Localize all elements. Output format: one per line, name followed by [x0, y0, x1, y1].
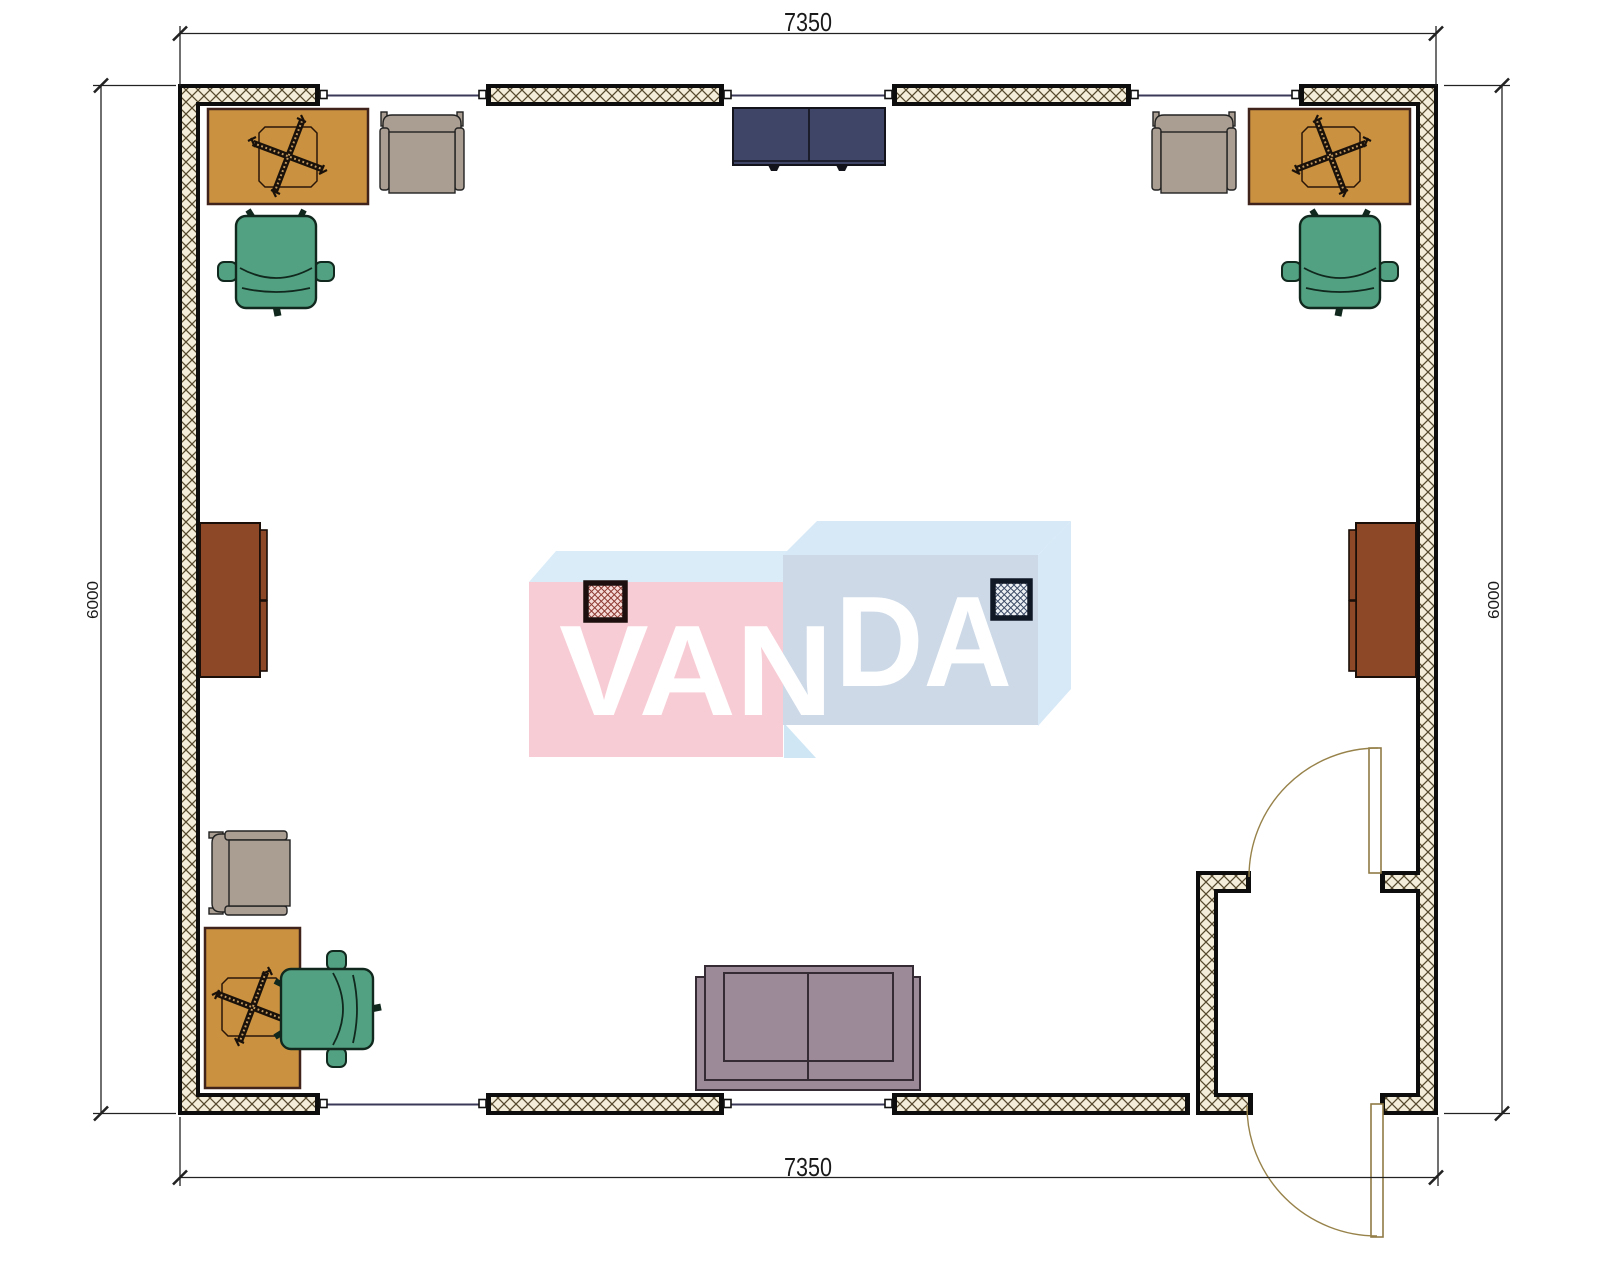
svg-text:6000: 6000 — [1486, 581, 1503, 619]
svg-text:DA: DA — [835, 570, 1012, 714]
svg-text:7350: 7350 — [784, 1152, 832, 1182]
svg-text:7350: 7350 — [784, 7, 832, 37]
svg-text:6000: 6000 — [85, 581, 102, 619]
